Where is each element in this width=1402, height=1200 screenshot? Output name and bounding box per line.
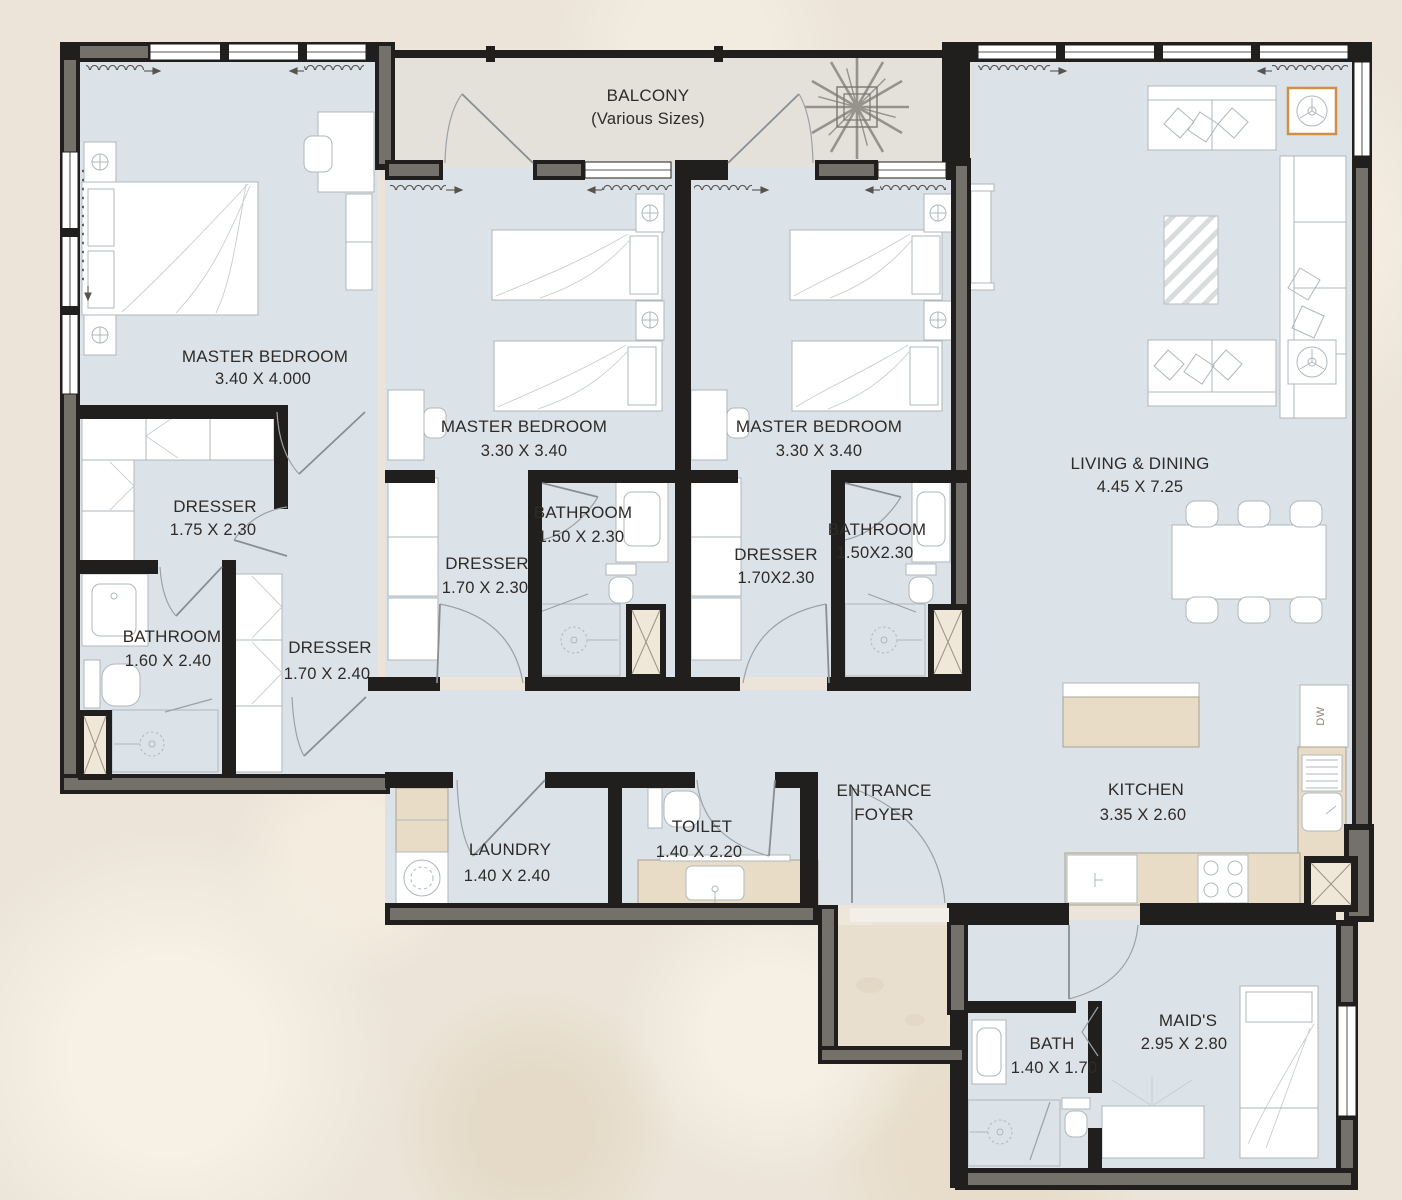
- laundry-fixtures: [396, 788, 448, 905]
- room-label-toilet: TOILET: [672, 817, 732, 836]
- basin: [977, 1028, 1001, 1076]
- room-label-kitchen: KITCHEN: [1108, 780, 1184, 799]
- room-label-maids: MAID'S: [1159, 1011, 1217, 1030]
- fridge: [1067, 855, 1137, 903]
- room-dims-dresser-1b: 1.70 X 2.40: [284, 665, 371, 683]
- room-dims-kitchen: 3.35 X 2.60: [1100, 806, 1187, 824]
- toilet-bowl: [909, 577, 933, 603]
- island-top: [1063, 683, 1199, 697]
- pillow: [628, 347, 656, 405]
- room-dims-master-3: 3.30 X 3.40: [776, 442, 863, 460]
- room-dims-laundry: 1.40 X 2.40: [464, 867, 551, 885]
- window: [1354, 62, 1370, 156]
- room-label-dresser-2: DRESSER: [445, 554, 529, 573]
- desk: [691, 390, 727, 460]
- toilet-bowl: [102, 664, 140, 706]
- dining-chair: [1290, 597, 1322, 623]
- room-label-bath-maid: BATH: [1030, 1034, 1075, 1053]
- cabinet: [691, 598, 741, 660]
- room-dims-toilet: 1.40 X 2.20: [656, 843, 743, 861]
- dishwasher-label: DW: [1315, 706, 1327, 725]
- room-label-dresser-1: DRESSER: [173, 497, 257, 516]
- room-dims-living: 4.45 X 7.25: [1097, 478, 1184, 496]
- room-label-living: LIVING & DINING: [1070, 454, 1209, 473]
- room-label-dresser-3: DRESSER: [734, 545, 818, 564]
- room-label-foyer-2: FOYER: [854, 805, 914, 824]
- room-label-dresser-1b: DRESSER: [288, 638, 372, 657]
- floor-plan-drawing: DW: [0, 0, 1402, 1200]
- room-dims-master-2: 3.30 X 3.40: [481, 442, 568, 460]
- cabinet: [388, 598, 438, 660]
- window: [1338, 1006, 1356, 1116]
- dining-chair: [1238, 597, 1270, 623]
- shaft: [1304, 856, 1358, 912]
- entry-walkway-floor: [838, 925, 947, 1046]
- drainer: [1302, 755, 1342, 791]
- pillow: [1246, 992, 1312, 1022]
- shaft: [928, 604, 968, 680]
- toilet-tank: [648, 788, 662, 828]
- toilet-tank: [84, 660, 100, 708]
- room-label-balcony: BALCONY: [607, 86, 690, 105]
- room-dims-dresser-1: 1.75 X 2.30: [170, 521, 257, 539]
- floor-plan-canvas: DW: [0, 0, 1402, 1200]
- dining-table: [1172, 525, 1326, 599]
- toilet-tank: [906, 564, 936, 575]
- window: [978, 42, 1348, 62]
- dresser-unit: [1102, 1106, 1204, 1158]
- hallway-floor: [285, 690, 971, 774]
- shaft: [626, 604, 666, 680]
- room-dims-maids: 2.95 X 2.80: [1141, 1035, 1228, 1053]
- room-label-master-1: MASTER BEDROOM: [182, 347, 348, 366]
- dining-chair: [1290, 501, 1322, 527]
- desk: [388, 390, 424, 460]
- sink: [1302, 793, 1342, 831]
- dining-chair: [1186, 501, 1218, 527]
- pillow: [912, 236, 940, 294]
- stove: [1198, 855, 1248, 903]
- room-label-foyer: ENTRANCE: [836, 781, 931, 800]
- room-label-laundry: LAUNDRY: [469, 840, 551, 859]
- room-label-master-3: MASTER BEDROOM: [736, 417, 902, 436]
- room-label-bathroom-1: BATHROOM: [123, 627, 222, 646]
- dining-chair: [1186, 597, 1218, 623]
- toilet-tank: [606, 564, 636, 575]
- room-label-master-2: MASTER BEDROOM: [441, 417, 607, 436]
- toilet-bowl: [1065, 1111, 1087, 1137]
- room-dims-bathroom-1: 1.60 X 2.40: [125, 652, 212, 670]
- window: [878, 162, 946, 178]
- room-dims-balcony: (Various Sizes): [591, 110, 705, 128]
- room-dims-dresser-2: 1.70 X 2.30: [442, 579, 529, 597]
- toilet-tank: [1062, 1098, 1090, 1109]
- shaft: [78, 710, 112, 780]
- toilet-bowl: [609, 577, 633, 603]
- room-label-bathroom-2: BATHROOM: [534, 503, 633, 522]
- room-dims-master-1: 3.40 X 4.000: [215, 370, 311, 388]
- rug: [1164, 216, 1218, 304]
- room-dims-bathroom-3: 1.50X2.30: [836, 544, 913, 562]
- pillow: [630, 236, 658, 294]
- window: [585, 162, 671, 178]
- room-dims-dresser-3: 1.70X2.30: [737, 569, 814, 587]
- room-dims-bath-maid: 1.40 X 1.70: [1011, 1059, 1098, 1077]
- wardrobe: [228, 574, 282, 772]
- kitchen-island: [1063, 697, 1199, 747]
- window: [60, 152, 80, 394]
- console: [971, 190, 991, 284]
- window: [150, 42, 366, 62]
- pillow: [910, 347, 938, 405]
- room-dims-bathroom-2: 1.50 X 2.30: [538, 528, 625, 546]
- room-label-bathroom-3: BATHROOM: [828, 520, 927, 539]
- desk-chair: [304, 136, 332, 172]
- dining-chair: [1238, 501, 1270, 527]
